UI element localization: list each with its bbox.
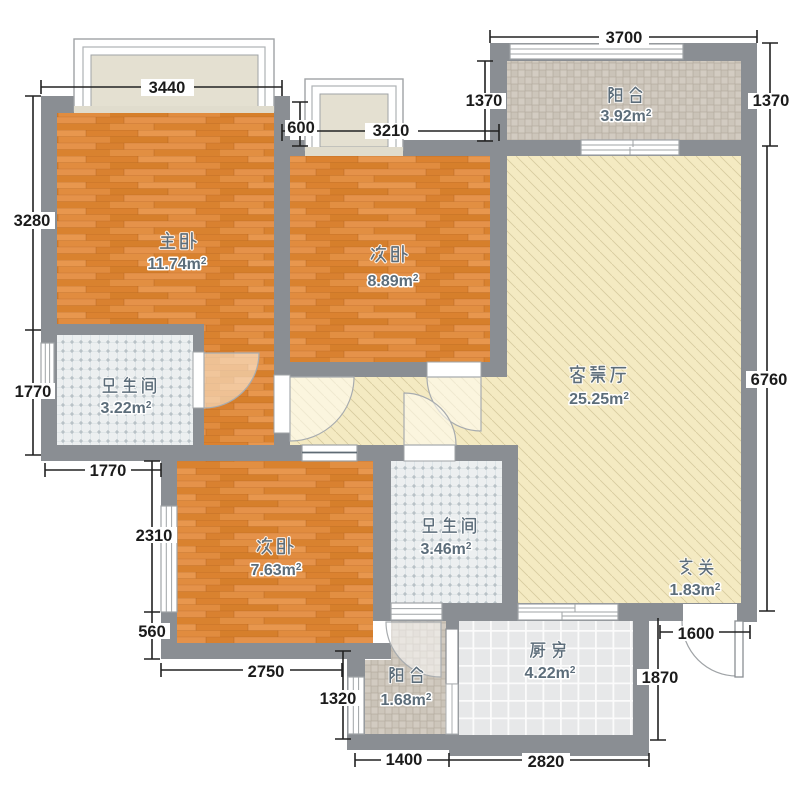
svg-text:2820: 2820 <box>528 753 565 771</box>
svg-text:1870: 1870 <box>642 669 679 687</box>
svg-text:25.25m2: 25.25m2 <box>569 391 629 408</box>
svg-text:1.68m2: 1.68m2 <box>381 692 432 709</box>
svg-text:1370: 1370 <box>466 92 503 110</box>
svg-text:3280: 3280 <box>14 212 51 230</box>
svg-text:3210: 3210 <box>373 122 410 140</box>
svg-text:8.89m2: 8.89m2 <box>368 273 419 290</box>
svg-text:1400: 1400 <box>386 751 423 769</box>
svg-text:1770: 1770 <box>15 383 52 401</box>
svg-text:560: 560 <box>138 623 166 641</box>
svg-text:4.22m2: 4.22m2 <box>525 665 576 682</box>
svg-text:3.46m2: 3.46m2 <box>421 541 472 558</box>
svg-text:1370: 1370 <box>753 92 790 110</box>
svg-text:6760: 6760 <box>751 371 788 389</box>
svg-text:7.63m2: 7.63m2 <box>251 562 302 579</box>
svg-text:600: 600 <box>287 119 315 137</box>
svg-text:3.22m2: 3.22m2 <box>101 400 152 417</box>
svg-text:2750: 2750 <box>248 663 285 681</box>
svg-text:1.83m2: 1.83m2 <box>670 582 721 599</box>
svg-text:3700: 3700 <box>606 29 643 47</box>
svg-text:3440: 3440 <box>149 79 186 97</box>
svg-text:2310: 2310 <box>136 527 173 545</box>
svg-text:1600: 1600 <box>678 625 715 643</box>
svg-text:11.74m2: 11.74m2 <box>148 256 207 273</box>
svg-text:3.92m2: 3.92m2 <box>601 108 652 125</box>
svg-text:1770: 1770 <box>90 462 127 480</box>
svg-text:1320: 1320 <box>320 690 357 708</box>
